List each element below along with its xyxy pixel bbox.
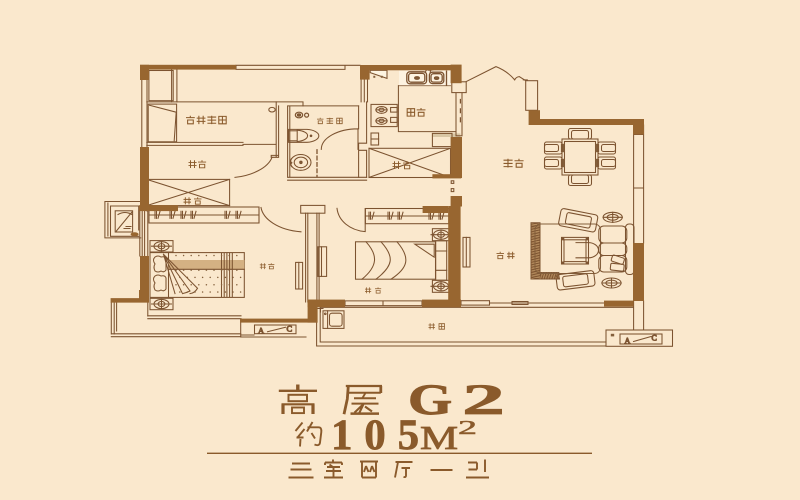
svg-text:2: 2 [458,416,477,438]
svg-text:C: C [652,334,657,343]
svg-text:M: M [420,420,458,457]
svg-text:C: C [287,323,293,333]
svg-text:105: 105 [331,412,431,459]
svg-text:A: A [625,337,631,346]
svg-text:A: A [258,325,265,335]
